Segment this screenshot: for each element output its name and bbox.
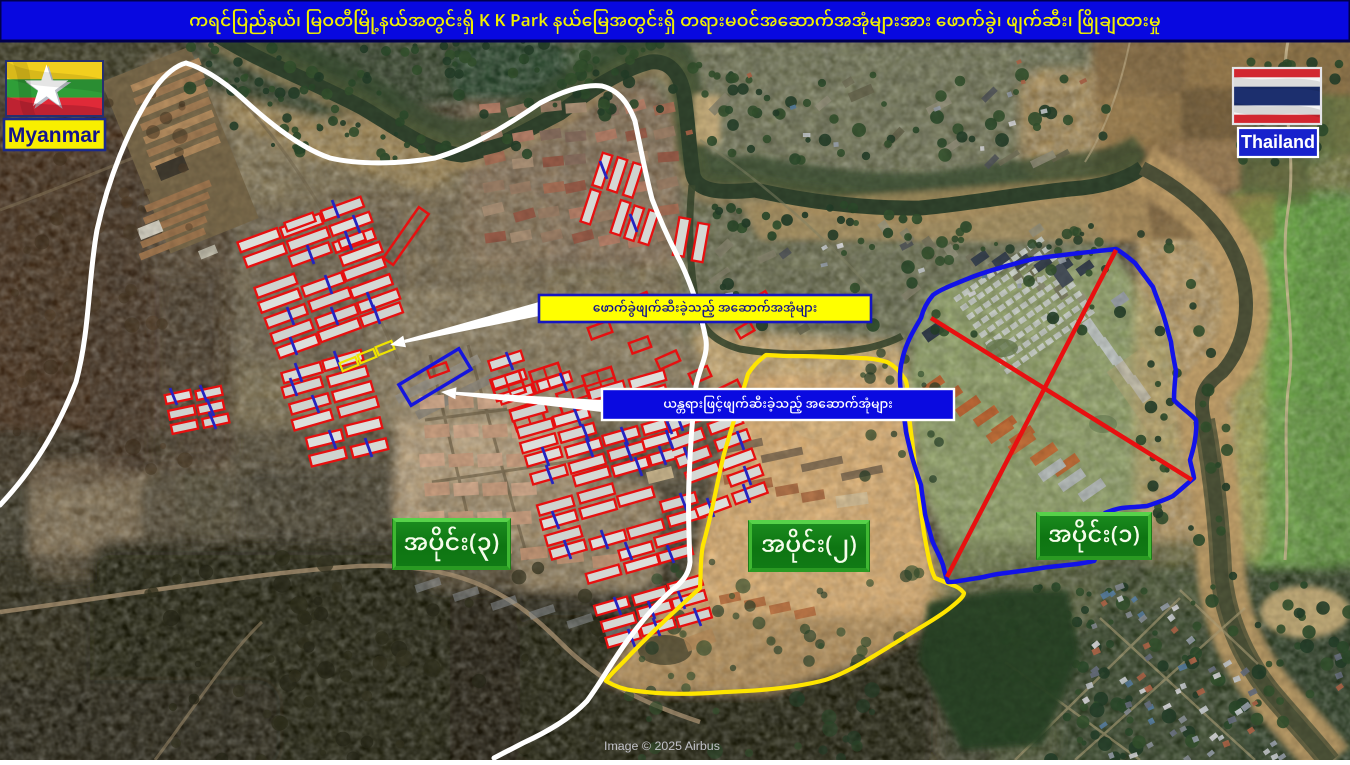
svg-text:Thailand: Thailand: [1241, 132, 1315, 152]
svg-text:Myanmar: Myanmar: [8, 124, 100, 147]
svg-text:Image © 2025 Airbus: Image © 2025 Airbus: [604, 739, 720, 753]
